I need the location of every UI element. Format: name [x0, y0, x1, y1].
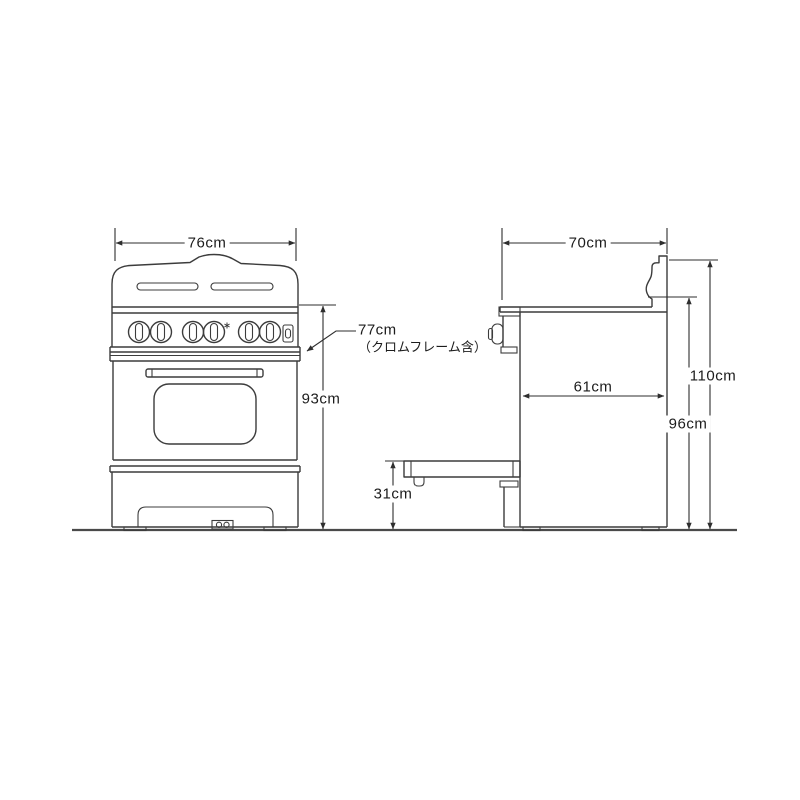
lower-trim-band	[110, 466, 300, 472]
front-view	[110, 255, 300, 531]
dim-label-top-height: 96cm	[666, 416, 711, 433]
burner-knobs	[129, 322, 281, 343]
burner-knob	[129, 322, 150, 343]
dimension-diagram: 76cm 93cm 77cm （クロムフレーム含） 70cm 61cm 31cm…	[0, 0, 800, 800]
dim-label-width: 76cm	[185, 235, 230, 252]
front-foot-left	[124, 527, 146, 531]
burner-knob	[260, 322, 281, 343]
oven-door-handle	[146, 369, 263, 377]
dim-label-depth: 70cm	[566, 235, 611, 252]
vent-slot-left	[137, 283, 198, 290]
side-foot-rear	[642, 527, 659, 531]
backguard-profile	[646, 256, 667, 312]
dim-label-frame-height: 77cm （クロムフレーム含）	[358, 322, 487, 353]
side-foot-front	[523, 527, 540, 531]
side-lower-panel	[500, 481, 520, 527]
oven-door-window	[154, 384, 256, 444]
igniter-box	[283, 325, 293, 342]
burner-knob	[239, 322, 260, 343]
side-control-panel	[489, 307, 521, 353]
base-recess-panel	[138, 507, 273, 527]
side-knob-profile	[492, 324, 503, 344]
open-door-handle	[414, 477, 424, 486]
leader-line-77	[307, 331, 356, 351]
stove-top-front	[112, 255, 298, 308]
dim-label-body-depth: 61cm	[571, 379, 616, 396]
burner-knob	[151, 322, 172, 343]
diagram-canvas	[0, 0, 800, 800]
dimension-annotations	[115, 228, 718, 529]
open-door-profile	[404, 461, 520, 486]
frame-height-note: （クロムフレーム含）	[358, 340, 487, 354]
side-view	[404, 256, 667, 531]
pilot-star-icon	[224, 323, 229, 329]
burner-knob	[183, 322, 204, 343]
chrome-frame-band	[110, 347, 300, 361]
frame-height-value: 77cm	[358, 322, 487, 338]
front-foot-right	[264, 527, 286, 531]
base-section	[112, 472, 298, 531]
vent-slot-right	[211, 283, 273, 290]
dim-label-front-height: 93cm	[299, 391, 344, 408]
oven-door	[113, 361, 297, 460]
side-body	[520, 312, 667, 531]
dim-label-door-height: 31cm	[371, 486, 416, 503]
base-latch	[212, 521, 233, 530]
dim-label-backguard-height: 110cm	[687, 368, 739, 385]
burner-knob	[204, 322, 225, 343]
